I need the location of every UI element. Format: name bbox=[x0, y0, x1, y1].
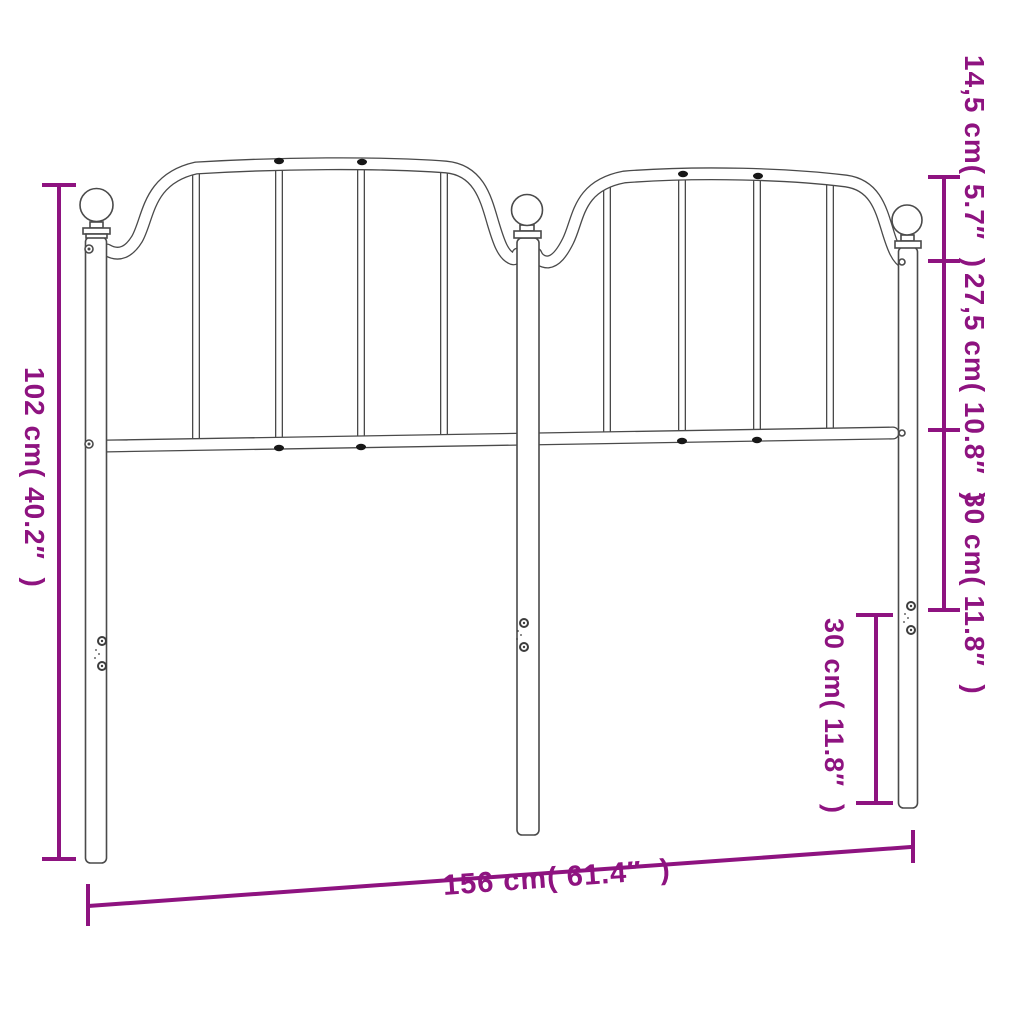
leg-mounting-holes bbox=[94, 602, 915, 670]
right-finial bbox=[892, 205, 922, 248]
right-post bbox=[899, 247, 918, 808]
height-dimension-line bbox=[57, 185, 61, 861]
center-finial bbox=[512, 195, 543, 239]
height-dimension-label: 102 cm( 40.2″ ) bbox=[20, 367, 48, 588]
leg-dimension-tick-bottom bbox=[856, 801, 893, 805]
headboard-lower-rail bbox=[107, 433, 893, 446]
top-rail-drop-label: 14,5 cm( 5.7″ ) bbox=[960, 55, 988, 268]
leg-dimension-label: 30 cm( 11.8″ ) bbox=[820, 618, 847, 814]
right-dimension-tick-3 bbox=[928, 428, 960, 432]
leg-dimension-line bbox=[874, 615, 878, 805]
right-dimension-line bbox=[942, 177, 946, 612]
headboard-top-rail-left bbox=[107, 164, 518, 259]
headboard-bars-left bbox=[196, 166, 444, 445]
headboard-top-rail-right bbox=[536, 174, 911, 263]
headboard-bars-right bbox=[607, 179, 830, 438]
left-finial bbox=[80, 189, 113, 239]
height-dimension-tick-top bbox=[42, 183, 76, 187]
rail-to-leg-label: 30 cm( 11.8″ ) bbox=[960, 492, 988, 695]
leg-dimension-tick-top bbox=[856, 613, 893, 617]
right-dimension-tick-4 bbox=[928, 608, 960, 612]
right-dimension-tick-2 bbox=[928, 259, 960, 263]
width-dimension-tick-right bbox=[911, 830, 915, 863]
width-dimension-tick-left bbox=[86, 884, 90, 926]
product-dimension-diagram: 102 cm( 40.2″ ) 156 cm( 61.4″ ) 14,5 cm(… bbox=[0, 0, 1024, 1024]
height-dimension-tick-bottom bbox=[42, 857, 76, 861]
center-post bbox=[517, 238, 539, 835]
panel-height-label: 27,5 cm( 10.8″ ) bbox=[960, 273, 988, 503]
left-post bbox=[86, 237, 107, 863]
right-dimension-tick-1 bbox=[928, 175, 960, 179]
headboard-posts bbox=[86, 237, 918, 863]
post-screws bbox=[85, 245, 905, 448]
